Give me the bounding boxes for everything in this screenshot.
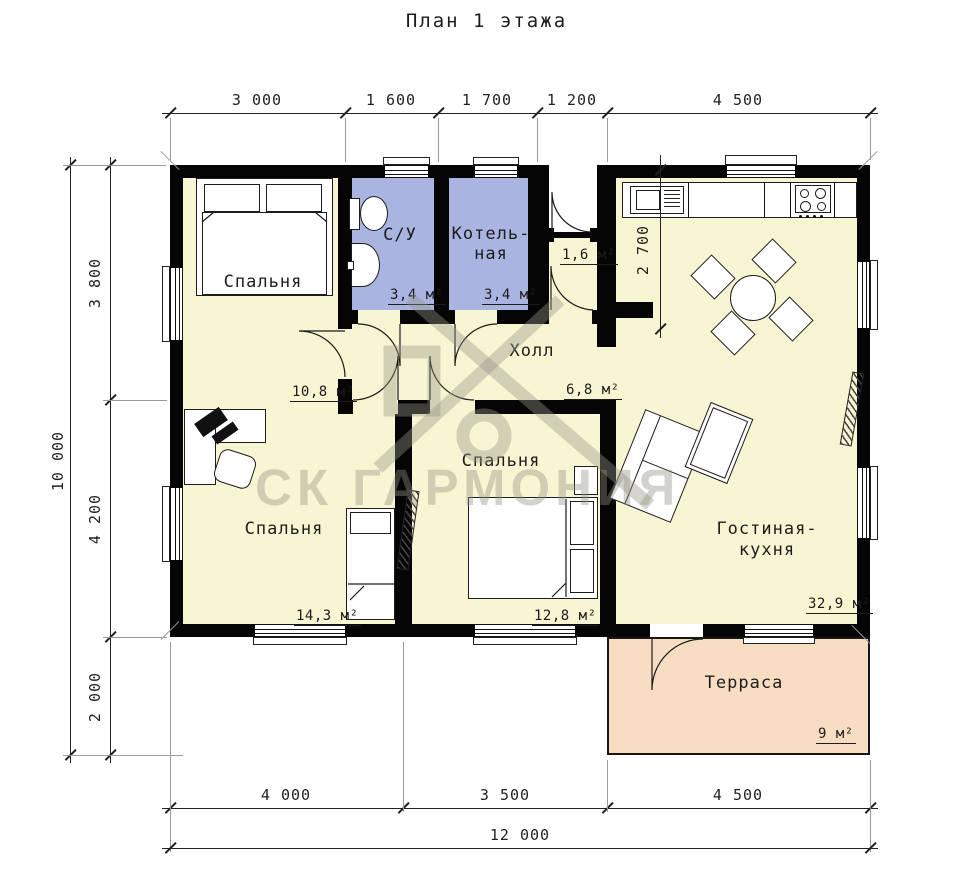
door-opening (338, 329, 352, 379)
room-area-hall: 6,8 м² (564, 382, 622, 400)
window-sill (725, 155, 797, 165)
extension-line (870, 118, 871, 160)
room-label-bedroom1: Спальня (213, 272, 313, 292)
extension-line (438, 118, 439, 162)
counter-divider (834, 183, 835, 217)
toilet-icon (349, 198, 360, 230)
burner-icon (815, 188, 826, 199)
room-label-terrace: Терраса (694, 673, 794, 693)
window (857, 468, 870, 538)
room-label-bathroom: С/У (370, 225, 430, 245)
extension-line (63, 165, 166, 166)
window (170, 488, 183, 560)
wall (600, 400, 616, 637)
room-label-boiler: ная (448, 244, 534, 264)
door-opening (549, 310, 592, 324)
stove-knob (820, 215, 823, 218)
room-label-living: Гостиная- (706, 519, 828, 539)
dim-label: 4 000 (251, 786, 321, 804)
door-jamb (590, 228, 597, 242)
entry-porch-floor (549, 165, 597, 232)
tap-icon (347, 261, 354, 270)
window (170, 268, 183, 340)
counter-divider (688, 183, 689, 217)
window (857, 262, 870, 328)
pillow-icon (204, 184, 260, 212)
room-label-boiler: Котель- (448, 224, 534, 244)
dim-label: 4 200 (86, 484, 104, 554)
extension-line (537, 118, 538, 162)
dimension-line (110, 157, 111, 763)
dim-label: 2 000 (86, 662, 104, 732)
door-opening (455, 310, 497, 324)
room-area-vestibule: 1,6 м² (560, 247, 618, 265)
window-sill (162, 486, 170, 562)
stove-knob (806, 215, 809, 218)
extension-line (607, 760, 608, 812)
door-opening (358, 310, 400, 324)
dim-label: 3 800 (86, 248, 104, 318)
window-sill (473, 637, 577, 645)
extension-line (63, 755, 183, 756)
window (727, 165, 795, 178)
window-sill (162, 266, 170, 342)
pillow-icon (570, 549, 594, 593)
window-sill (383, 157, 430, 165)
door-opening (353, 400, 398, 414)
room-area-terrace: 9 м² (816, 726, 856, 744)
window-sill (870, 466, 878, 540)
room-area-boiler: 3,4 м² (482, 287, 540, 305)
floor-plan: План 1 этажа (0, 0, 973, 876)
window (385, 165, 428, 178)
extension-line (103, 637, 167, 638)
room-area-living: 32,9 м² (806, 596, 873, 614)
extension-line (870, 760, 871, 852)
room-area-bedroom2: 14,3 м² (294, 608, 361, 626)
window-sill (473, 157, 519, 165)
extension-line (403, 642, 404, 812)
dimension-line (162, 808, 878, 809)
dimension-line (162, 113, 878, 114)
stove-knob (813, 215, 816, 218)
door-opening-terrace (650, 624, 703, 637)
window-sill (253, 637, 347, 645)
stove-knob (799, 215, 802, 218)
extension-line (170, 642, 171, 852)
pillow-icon (266, 184, 322, 212)
dim-label: 3 000 (222, 91, 292, 109)
room-label-bedroom2: Спальня (234, 519, 334, 539)
burner-icon (817, 202, 826, 211)
extension-line (607, 118, 608, 162)
room-area-bedroom3: 12,8 м² (532, 608, 599, 626)
dim-label: 2 700 (634, 215, 652, 285)
extension-line (170, 118, 171, 160)
wall (616, 302, 653, 318)
page-title: План 1 этажа (0, 10, 973, 32)
fridge-coil-icon (664, 190, 680, 210)
dim-label: 1 600 (356, 91, 426, 109)
extension-line (345, 118, 346, 162)
burner-icon (800, 189, 809, 198)
dimension-line (660, 155, 661, 338)
room-area-bedroom1: 10,8 м² (290, 384, 357, 402)
dim-label: 12 000 (480, 826, 560, 844)
dimension-line (70, 157, 71, 763)
watermark-text: СК ГАРМОНИЯ (255, 458, 680, 517)
dim-label: 1 700 (452, 91, 522, 109)
window (745, 624, 813, 637)
window (475, 165, 517, 178)
fridge-icon (636, 190, 660, 210)
window-sill (743, 637, 815, 644)
room-label-living: кухня (706, 540, 828, 560)
counter-divider (790, 183, 791, 217)
door-opening (430, 400, 475, 414)
dining-table-icon (730, 275, 776, 321)
door-jamb (549, 228, 554, 242)
extension-line (103, 400, 167, 401)
dim-label: 4 500 (703, 786, 773, 804)
counter-divider (764, 183, 765, 217)
dim-label: 1 200 (537, 91, 607, 109)
burner-icon (800, 201, 811, 212)
room-area-bathroom: 3,4 м² (388, 287, 446, 305)
dim-label: 10 000 (49, 423, 67, 499)
window-sill (870, 260, 878, 330)
dimension-line (162, 848, 878, 849)
dim-label: 4 500 (703, 91, 773, 109)
room-label-hall: Холл (499, 341, 565, 361)
dim-label: 3 500 (470, 786, 540, 804)
